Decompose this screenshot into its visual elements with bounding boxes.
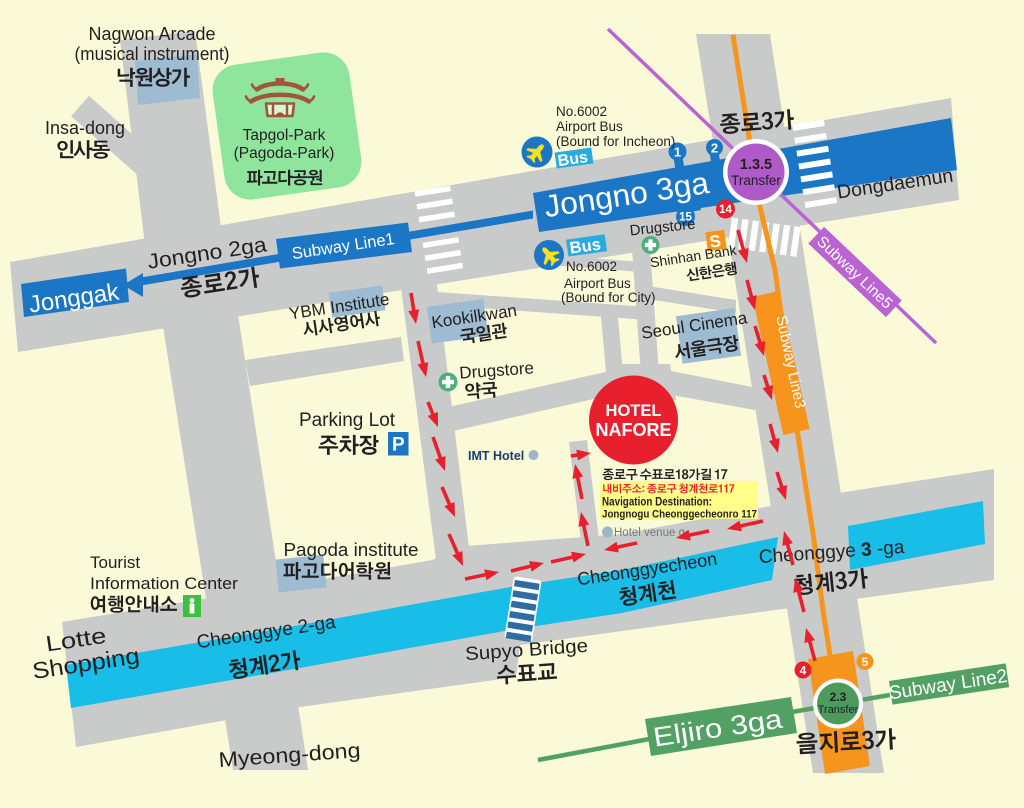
svg-text:(Bound for Incheon): (Bound for Incheon) (556, 134, 675, 149)
svg-text:No.6002: No.6002 (556, 104, 607, 119)
svg-text:4: 4 (800, 664, 807, 678)
svg-text:HOTEL: HOTEL (606, 402, 662, 420)
svg-text:Information Center: Information Center (90, 574, 238, 593)
svg-text:Navigation Destination:: Navigation Destination: (602, 495, 712, 509)
svg-text:Airport Bus: Airport Bus (564, 276, 631, 291)
svg-text:No.6002: No.6002 (566, 259, 617, 274)
svg-text:Hotel venue g: Hotel venue g (614, 527, 685, 539)
svg-text:2.3: 2.3 (830, 690, 847, 704)
svg-text:Transfer: Transfer (731, 173, 781, 188)
svg-text:1.3.5: 1.3.5 (740, 157, 772, 173)
svg-text:(Bound for City): (Bound for City) (561, 290, 656, 305)
svg-text:Transfer: Transfer (818, 704, 859, 716)
svg-text:Jongnogu Cheonggecheonro 117: Jongnogu Cheonggecheonro 117 (602, 509, 757, 521)
svg-text:(musical instrument): (musical instrument) (75, 44, 230, 64)
svg-text:IMT Hotel: IMT Hotel (468, 449, 524, 463)
svg-text:NAFORE: NAFORE (596, 420, 672, 440)
svg-text:Insa-dong: Insa-dong (45, 118, 125, 138)
svg-text:Tourist: Tourist (90, 553, 140, 572)
svg-text:(Pagoda-Park): (Pagoda-Park) (234, 145, 335, 162)
svg-text:Nagwon Arcade: Nagwon Arcade (89, 24, 216, 44)
svg-text:14: 14 (719, 204, 732, 216)
svg-text:P: P (392, 435, 405, 456)
svg-text:Parking Lot: Parking Lot (299, 410, 396, 431)
svg-text:Tapgol-Park: Tapgol-Park (243, 127, 326, 144)
svg-text:Airport Bus: Airport Bus (556, 119, 623, 134)
svg-text:2: 2 (711, 141, 718, 156)
svg-text:Pagoda institute: Pagoda institute (284, 540, 419, 560)
svg-text:5: 5 (862, 655, 869, 669)
